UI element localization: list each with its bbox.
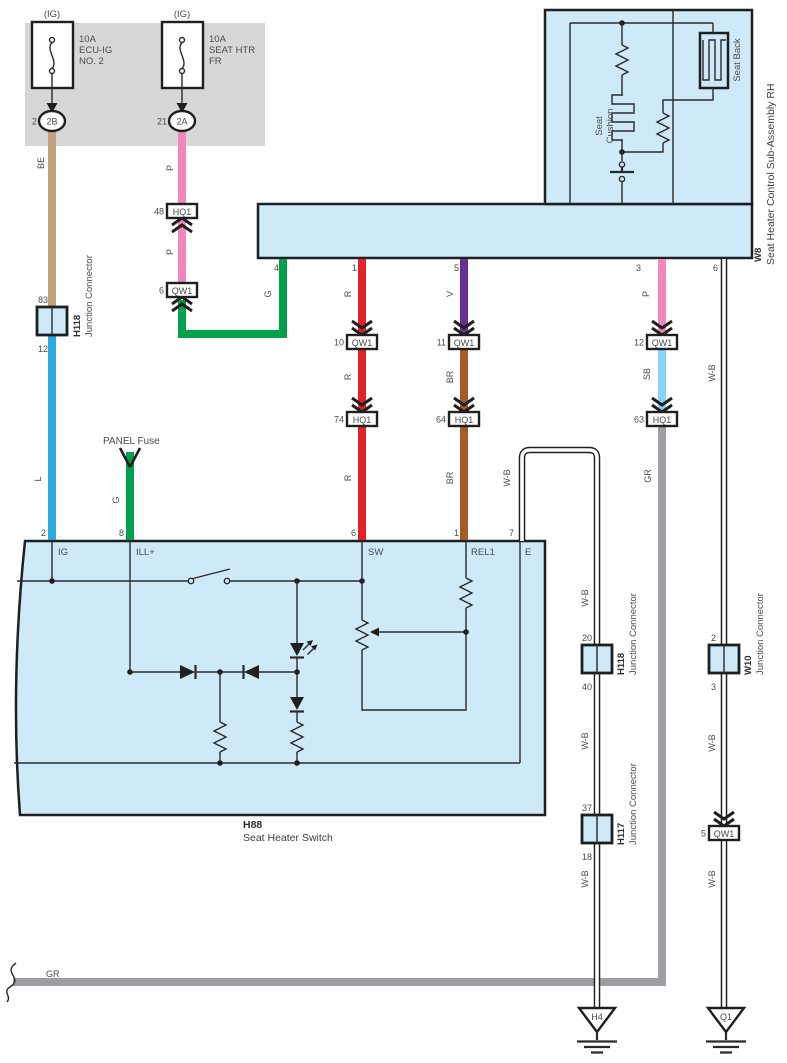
wire-label-wb: W-B xyxy=(707,870,717,887)
junction-code: H118 xyxy=(72,315,83,337)
wire-label-gr: GR xyxy=(643,469,653,483)
junction-h117: 37 18 H117 Junction Connector xyxy=(582,763,639,862)
junction-dot xyxy=(294,669,300,675)
fuse-rating: 10A xyxy=(209,34,227,45)
wire-label-sb: SB xyxy=(642,368,652,380)
fuse-name-2: FR xyxy=(209,56,222,67)
wire-label-r: R xyxy=(343,373,353,380)
connector-pin: 48 xyxy=(154,207,164,217)
junction-dot xyxy=(49,578,55,584)
wire-label-p: P xyxy=(641,291,651,297)
junction-name: Junction Connector xyxy=(628,593,639,675)
junction-pin-bottom: 3 xyxy=(711,682,716,692)
ground-h4: H4 xyxy=(577,1008,617,1053)
h88-terminal-ill: ILL+ xyxy=(136,547,155,558)
connector-hq1-48: HQ1 48 xyxy=(154,204,197,218)
wire-label-wb: W-B xyxy=(707,364,717,381)
connector-qw1-10: QW1 10 xyxy=(334,335,377,349)
connector-pin: 10 xyxy=(334,338,344,348)
junction-code: H118 xyxy=(616,653,627,675)
connector-pin: 63 xyxy=(634,415,644,425)
fuse-name-2: NO. 2 xyxy=(79,56,104,67)
junction-pin-top: 2 xyxy=(711,633,716,643)
junction-pin-top: 83 xyxy=(38,295,48,305)
junction-w10: 2 3 W10 Junction Connector xyxy=(709,593,766,692)
connector-qw1-12: QW1 12 xyxy=(634,335,677,349)
w8-pin-1: 1 xyxy=(352,263,357,273)
gr-break-symbol xyxy=(7,963,16,1002)
w8-pin-3: 3 xyxy=(636,263,641,273)
ground-q1: Q1 xyxy=(706,1008,746,1053)
h88-pin-1: 1 xyxy=(454,528,459,538)
connector-qw1-6: QW1 6 xyxy=(159,283,197,297)
w8-connector-bar xyxy=(258,204,752,258)
ground-label: Q1 xyxy=(720,1012,732,1022)
connector-code: QW1 xyxy=(454,338,475,348)
fuse-rating: 10A xyxy=(79,34,97,45)
w8-name: Seat Heater Control Sub-Assembly RH xyxy=(765,84,777,266)
wire-label-g: G xyxy=(111,496,121,503)
wire-label-br: BR xyxy=(445,370,455,383)
panel-fuse-label: PANEL Fuse xyxy=(103,436,160,447)
ground-hatch-icon xyxy=(706,1042,746,1053)
ground-hatch-icon xyxy=(577,1042,617,1053)
wire-label-be: BE xyxy=(36,157,46,169)
wire-label-p: P xyxy=(165,165,175,171)
connector-qw1-5: QW1 5 xyxy=(701,826,739,840)
connector-qw1-11: QW1 11 xyxy=(437,335,479,349)
connector-pin: 64 xyxy=(436,415,446,425)
h88-terminal-rel1: REL1 xyxy=(471,547,495,558)
connector-code: HQ1 xyxy=(653,415,672,425)
h88-terminal-sw: SW xyxy=(368,547,383,558)
junction-code: W10 xyxy=(743,655,754,675)
w8-pin-5: 5 xyxy=(454,263,459,273)
h88-name: Seat Heater Switch xyxy=(243,832,333,844)
h88-terminal-ig: IG xyxy=(58,547,68,558)
junction-pin-top: 37 xyxy=(582,803,592,813)
connector-code: HQ1 xyxy=(353,415,372,425)
wire-label-wb: W-B xyxy=(580,589,590,606)
connector-pin: 11 xyxy=(437,338,446,348)
w8-pin-4: 4 xyxy=(274,263,279,273)
panel-fuse-source: PANEL Fuse xyxy=(103,436,160,467)
junction-name: Junction Connector xyxy=(628,763,639,845)
junction-h118-left: 83 12 H118 Junction Connector xyxy=(37,255,95,354)
wire-label-wb: W-B xyxy=(502,469,512,486)
junction-pin-bottom: 40 xyxy=(582,682,592,692)
connector-pin: 74 xyxy=(334,415,344,425)
junction-h118-right: 20 40 H118 Junction Connector xyxy=(582,593,639,692)
junction-pin-top: 20 xyxy=(582,633,592,643)
fuse-name-1: ECU-IG xyxy=(79,45,112,56)
junction-name: Junction Connector xyxy=(755,593,766,675)
h88-pin-6: 6 xyxy=(351,528,356,538)
connector-code: QW1 xyxy=(352,338,373,348)
fuse-name-1: SEAT HTR xyxy=(209,45,255,56)
connector-pin: 5 xyxy=(701,829,706,839)
h88-pin-8: 8 xyxy=(119,528,124,538)
fuse-tag: (IG) xyxy=(44,9,60,20)
connector-pin: 6 xyxy=(159,286,164,296)
junction-pin-bottom: 12 xyxy=(38,344,48,354)
ground-label: H4 xyxy=(591,1012,603,1022)
connector-code: HQ1 xyxy=(455,415,474,425)
junction-dot xyxy=(217,760,223,766)
w8-box xyxy=(545,10,752,204)
connector-hq1-74: HQ1 74 xyxy=(334,412,377,426)
connector-code: HQ1 xyxy=(173,207,192,217)
wire-label-p: P xyxy=(165,249,175,255)
wire-label-wb: W-B xyxy=(707,734,717,751)
wire-label-v: V xyxy=(445,291,455,297)
connector-label: 2A xyxy=(176,116,187,126)
seat-back-label: Seat Back xyxy=(732,38,743,82)
connector-hq1-63: HQ1 63 xyxy=(634,412,677,426)
connector-pin: 12 xyxy=(634,338,644,348)
wiring-diagram: HQ1 48 QW1 6 QW1 10 QW1 11 QW1 12 HQ1 74… xyxy=(0,0,787,1063)
connector-code: QW1 xyxy=(714,829,735,839)
connector-hq1-64: HQ1 64 xyxy=(436,412,479,426)
w8-pin-6: 6 xyxy=(713,263,718,273)
junction-dot xyxy=(294,760,300,766)
wire-label-br: BR xyxy=(445,471,455,484)
junction-pin-bottom: 18 xyxy=(582,852,592,862)
wire-label-r: R xyxy=(343,474,353,481)
junction-code: H117 xyxy=(616,823,627,845)
connector-code: QW1 xyxy=(172,286,193,296)
wire-label-gr-bottom: GR xyxy=(46,969,60,979)
junction-dot xyxy=(463,629,469,635)
seat-cushion-label-2: Cushion xyxy=(605,109,616,144)
connector-code: QW1 xyxy=(652,338,673,348)
w8-code: W8 xyxy=(753,248,764,262)
connector-pin: 2 xyxy=(32,116,37,126)
wire-label-g: G xyxy=(263,290,273,297)
wire-label-r: R xyxy=(343,290,353,297)
seat-cushion-label-1: Seat xyxy=(594,116,605,136)
junction-name: Junction Connector xyxy=(84,255,95,337)
wire-label-l: L xyxy=(33,476,43,481)
h88-code: H88 xyxy=(243,819,262,831)
h88-terminal-e: E xyxy=(525,547,531,558)
h88-pin-7: 7 xyxy=(509,528,514,538)
wire-label-wb: W-B xyxy=(580,870,590,887)
fuse-tag: (IG) xyxy=(174,9,190,20)
wire-label-wb: W-B xyxy=(580,732,590,749)
connector-pin: 21 xyxy=(157,116,167,126)
connector-label: 2B xyxy=(46,116,57,126)
h88-pin-2: 2 xyxy=(41,528,46,538)
